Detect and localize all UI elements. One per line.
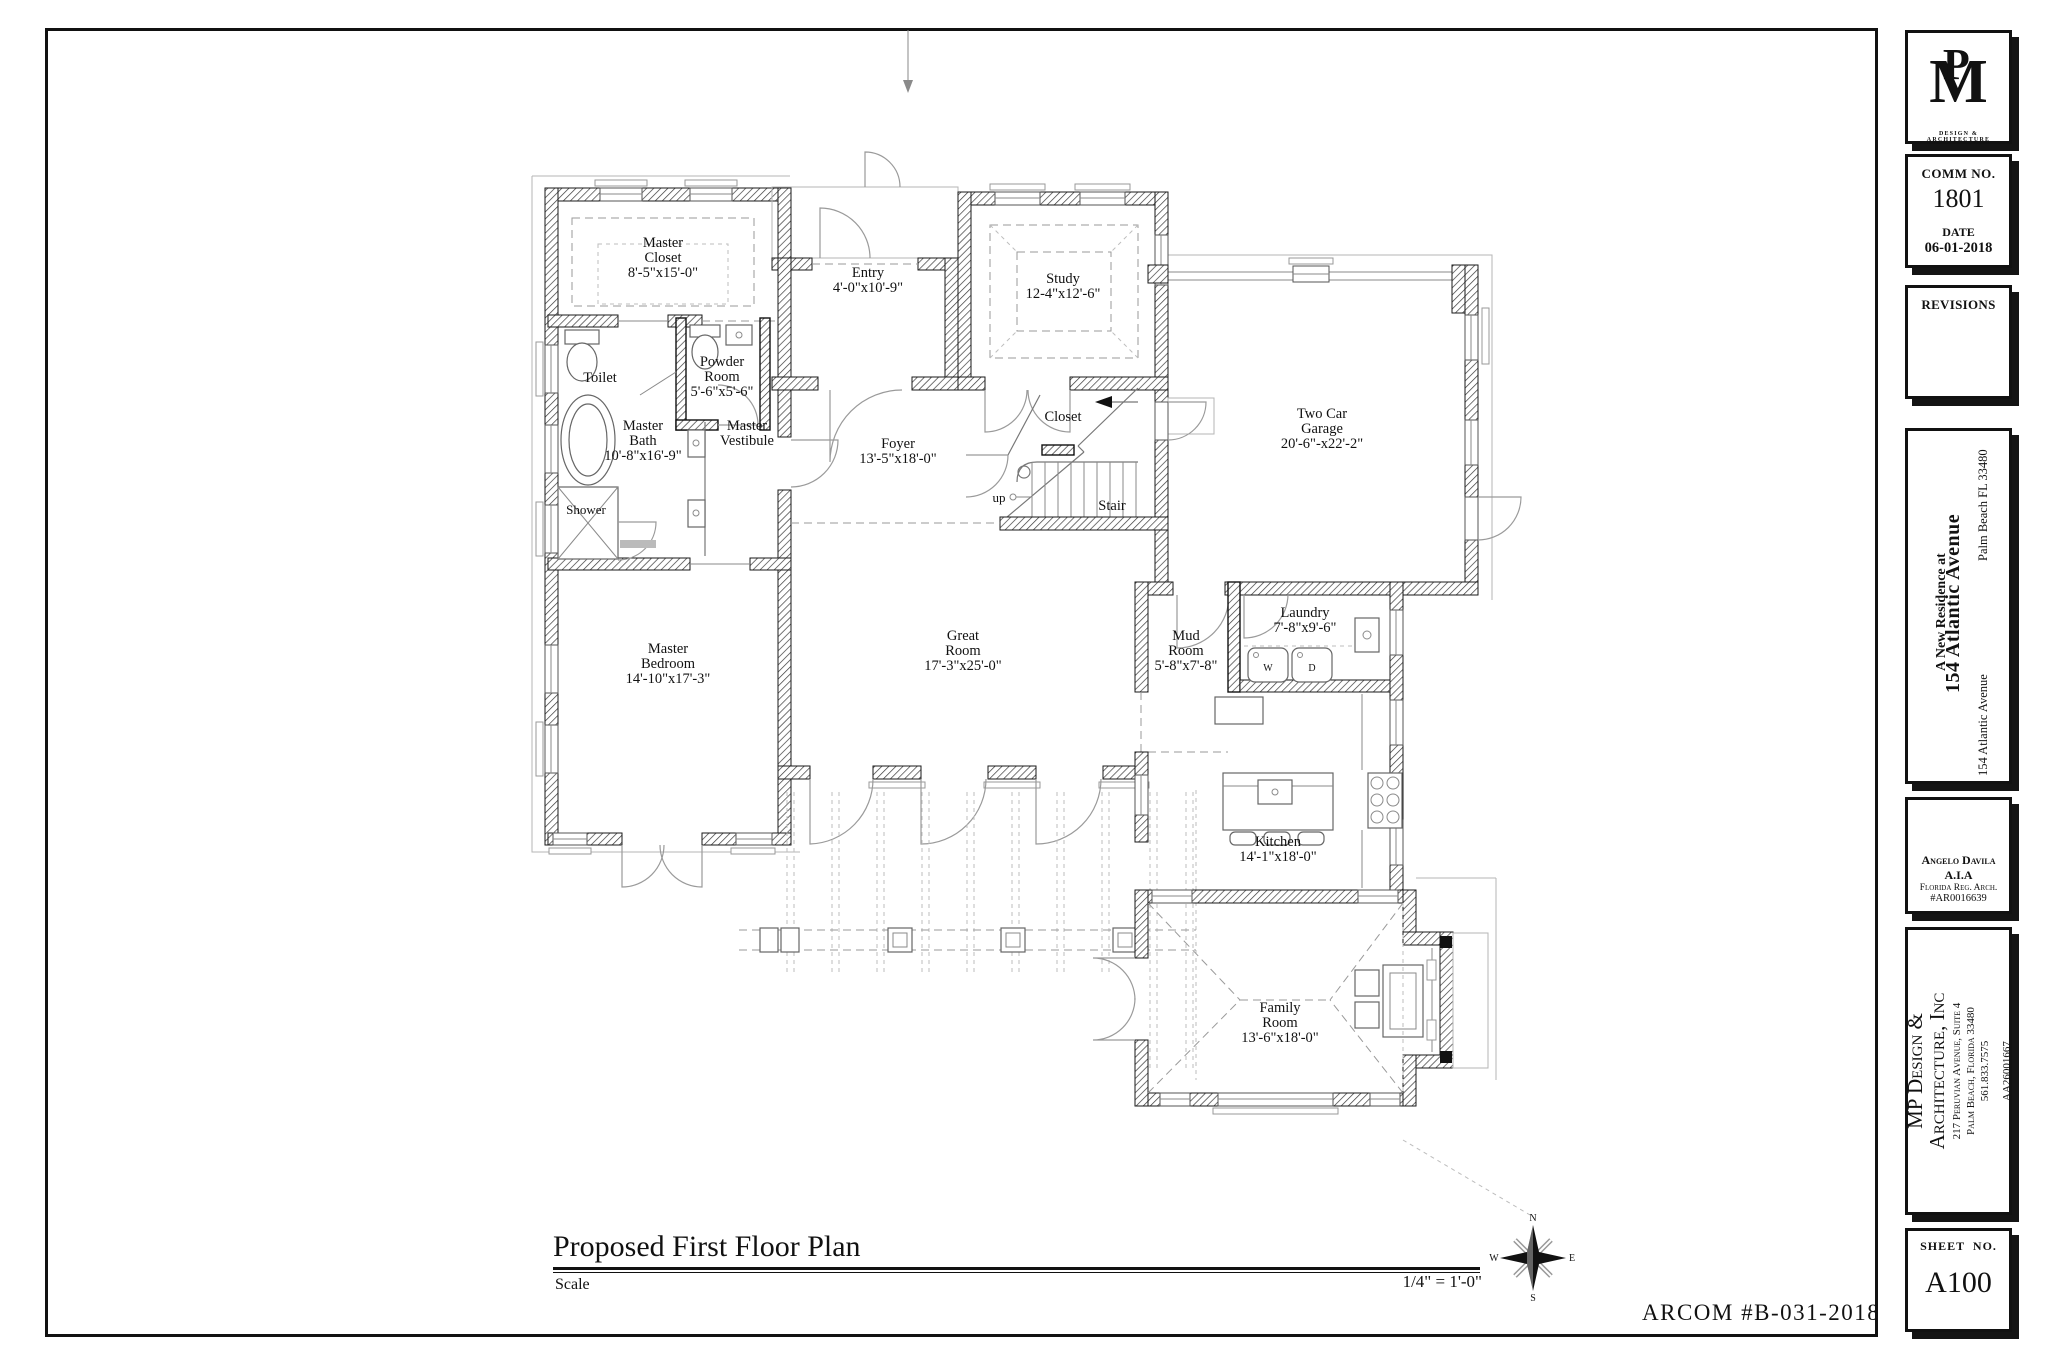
svg-text:Room: Room xyxy=(1262,1015,1298,1031)
label-up: up xyxy=(993,490,1006,505)
architect-name: Angelo Davila A.I.A xyxy=(1908,853,2009,883)
room-label-laundry: Laundry xyxy=(1280,605,1330,621)
room-label-family-room: Family xyxy=(1259,1000,1301,1016)
svg-text:Closet: Closet xyxy=(644,250,681,266)
compass-s: S xyxy=(1530,1293,1536,1304)
firm-box: MP Design & Architecture, Inc 217 Peruvi… xyxy=(1905,927,2012,1215)
scale-label: Scale xyxy=(555,1276,590,1294)
project-box: A New Residence at 154 Atlantic Avenue P… xyxy=(1905,428,2012,784)
garage-walls xyxy=(1148,258,1521,648)
stair-hall xyxy=(791,388,1214,530)
sheet-a100: Master Closet 8'-5"x15'-0" Entry 4'-0"x1… xyxy=(0,0,2048,1365)
room-label-entry: Entry xyxy=(852,265,885,281)
svg-text:13'-6"x18'-0": 13'-6"x18'-0" xyxy=(1241,1030,1319,1046)
date-label: DATE xyxy=(1908,225,2009,240)
architect-box: Angelo Davila A.I.A Florida Reg. Arch. #… xyxy=(1905,797,2012,914)
room-label-foyer: Foyer xyxy=(881,436,915,452)
svg-text:17'-3"x25'-0": 17'-3"x25'-0" xyxy=(924,658,1002,674)
revisions-label: REVISIONS xyxy=(1908,297,2009,313)
room-label-master-bath: Master xyxy=(623,418,663,434)
room-label-garage: Two Car xyxy=(1297,406,1347,422)
firm-license: AA26001667 xyxy=(2001,930,2013,1212)
label-washer: W xyxy=(1263,663,1273,674)
svg-text:13'-5"x18'-0": 13'-5"x18'-0" xyxy=(859,451,937,467)
leader-arrow xyxy=(903,30,913,93)
room-label-master-bedroom: Master xyxy=(648,641,688,657)
firm-address1: 217 Peruvian Avenue, Suite 4 xyxy=(1951,930,1965,1212)
firm-name-line1: MP Design & xyxy=(1904,930,1926,1212)
floor-plan-drawing: Master Closet 8'-5"x15'-0" Entry 4'-0"x1… xyxy=(0,0,2048,1365)
firm-name-line2: Architecture, Inc xyxy=(1926,930,1948,1212)
logo-box: M P DESIGN & ARCHITECTURE xyxy=(1905,30,2012,144)
svg-text:20'-6"-x22'-2": 20'-6"-x22'-2" xyxy=(1281,436,1363,452)
logo-tagline: DESIGN & ARCHITECTURE xyxy=(1908,131,2009,143)
svg-text:5'-8"x7'-8": 5'-8"x7'-8" xyxy=(1155,658,1218,674)
compass-w: W xyxy=(1489,1253,1499,1264)
room-label-kitchen: Kitchen xyxy=(1255,834,1302,850)
svg-text:Bedroom: Bedroom xyxy=(641,656,696,672)
room-label-great-room: Great xyxy=(947,628,979,644)
compass-rose: N E S W xyxy=(1489,1213,1575,1304)
sheet-no-box: SHEET NO. A100 xyxy=(1905,1228,2012,1332)
firm-phone: 561.833.7575 xyxy=(1979,930,1993,1212)
svg-text:Bath: Bath xyxy=(629,433,657,449)
comm-no-label: COMM NO. xyxy=(1908,166,2009,182)
room-label-mud-room: Mud xyxy=(1172,628,1200,644)
svg-text:Room: Room xyxy=(945,643,981,659)
sheet-no-label: SHEET NO. xyxy=(1908,1239,2009,1254)
svg-text:4'-0"x10'-9": 4'-0"x10'-9" xyxy=(833,280,903,296)
firm-address2: Palm Beach, Florida 33480 xyxy=(1965,930,1979,1212)
plan-title: Proposed First Floor Plan xyxy=(553,1230,861,1264)
svg-text:Garage: Garage xyxy=(1301,421,1343,437)
mp-monogram-logo: M P xyxy=(1908,41,2009,123)
room-label-study: Study xyxy=(1046,271,1081,287)
room-label-powder: Powder xyxy=(700,354,744,370)
comm-no-value: 1801 xyxy=(1908,184,2009,214)
scale-value: 1/4" = 1'-0" xyxy=(1396,1272,1482,1292)
date-value: 06-01-2018 xyxy=(1908,240,2009,257)
svg-text:14'-10"x17'-3": 14'-10"x17'-3" xyxy=(626,671,711,687)
svg-text:8'-5"x15'-0": 8'-5"x15'-0" xyxy=(628,265,698,281)
svg-text:5'-6"x5'-6": 5'-6"x5'-6" xyxy=(691,384,754,400)
svg-text:14'-1"x18'-0": 14'-1"x18'-0" xyxy=(1239,849,1317,865)
room-label-master-closet: Master xyxy=(643,235,683,251)
project-city: Palm Beach FL 33480 xyxy=(1976,449,1991,561)
svg-text:12-4"x12'-6": 12-4"x12'-6" xyxy=(1026,286,1101,302)
logo-letter-p: P xyxy=(1943,43,1970,87)
project-street: 154 Atlantic Avenue xyxy=(1976,674,1991,776)
compass-n: N xyxy=(1529,1213,1536,1224)
room-label-closet: Closet xyxy=(1044,409,1081,425)
architect-registration: Florida Reg. Arch. xyxy=(1908,883,2009,893)
entry-porch xyxy=(772,152,958,462)
room-label-shower: Shower xyxy=(566,502,606,517)
label-dryer: D xyxy=(1308,663,1315,674)
revisions-box: REVISIONS xyxy=(1905,285,2012,399)
project-name: 154 Atlantic Avenue xyxy=(1942,514,1965,693)
svg-text:10'-8"x16'-9": 10'-8"x16'-9" xyxy=(604,448,682,464)
compass-e: E xyxy=(1569,1253,1575,1264)
svg-text:7'-8"x9'-6": 7'-8"x9'-6" xyxy=(1274,620,1337,636)
room-label-toilet: Toilet xyxy=(583,370,617,386)
arcom-stamp: ARCOM #B-031-2018 xyxy=(1642,1300,1880,1326)
svg-text:Room: Room xyxy=(1168,643,1204,659)
pergola xyxy=(739,792,1196,1070)
room-label-master-vestibule: Master xyxy=(727,418,767,434)
svg-text:Vestibule: Vestibule xyxy=(720,433,774,449)
title-underline xyxy=(553,1267,1480,1273)
room-label-stair: Stair xyxy=(1098,498,1126,514)
firm-info: MP Design & Architecture, Inc 217 Peruvi… xyxy=(1908,930,2009,1212)
comm-no-box: COMM NO. 1801 DATE 06-01-2018 xyxy=(1905,154,2012,268)
great-room-south-wall xyxy=(778,766,1149,844)
sheet-no-value: A100 xyxy=(1908,1266,2009,1300)
svg-text:Room: Room xyxy=(704,369,740,385)
architect-number: #AR0016639 xyxy=(1908,893,2009,904)
